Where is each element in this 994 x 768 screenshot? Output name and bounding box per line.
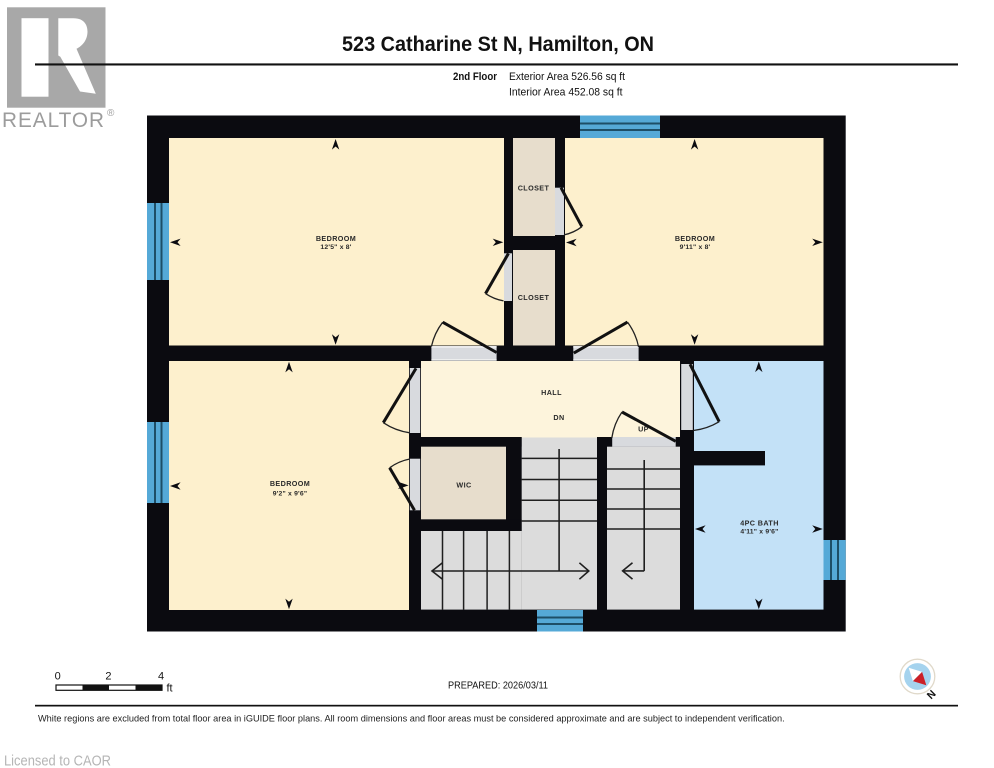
svg-text:Licensed to CAOR: Licensed to CAOR (4, 753, 111, 768)
svg-text:9'11" x 8': 9'11" x 8' (680, 244, 711, 251)
svg-text:ft: ft (167, 683, 173, 695)
svg-text:BEDROOM: BEDROOM (270, 479, 310, 488)
svg-text:DN: DN (553, 413, 564, 422)
svg-text:4'11" x 9'6": 4'11" x 9'6" (740, 529, 778, 536)
svg-text:0: 0 (55, 671, 61, 683)
svg-text:®: ® (107, 108, 115, 119)
svg-text:BEDROOM: BEDROOM (675, 234, 715, 243)
svg-text:9'2" x 9'6": 9'2" x 9'6" (273, 490, 308, 497)
svg-text:Interior Area 452.08 sq ft: Interior Area 452.08 sq ft (509, 87, 623, 99)
svg-text:PREPARED: 2026/03/11: PREPARED: 2026/03/11 (448, 679, 548, 691)
svg-text:Exterior Area 526.56 sq ft: Exterior Area 526.56 sq ft (509, 71, 625, 83)
svg-text:REALTOR: REALTOR (2, 109, 105, 132)
svg-text:HALL: HALL (541, 388, 562, 397)
svg-text:WIC: WIC (456, 480, 471, 489)
svg-text:CLOSET: CLOSET (518, 293, 550, 302)
svg-text:12'5" x 8': 12'5" x 8' (320, 244, 351, 251)
svg-text:CLOSET: CLOSET (518, 184, 550, 193)
svg-text:2: 2 (105, 671, 111, 683)
svg-text:2nd Floor: 2nd Floor (453, 71, 497, 83)
svg-text:4: 4 (158, 671, 164, 683)
svg-text:White regions are excluded fro: White regions are excluded from total fl… (38, 714, 785, 724)
svg-text:4PC BATH: 4PC BATH (740, 519, 779, 528)
svg-text:523 Catharine St N, Hamilton,: 523 Catharine St N, Hamilton, ON (342, 32, 654, 56)
svg-text:UP: UP (638, 425, 649, 434)
svg-text:BEDROOM: BEDROOM (316, 234, 356, 243)
